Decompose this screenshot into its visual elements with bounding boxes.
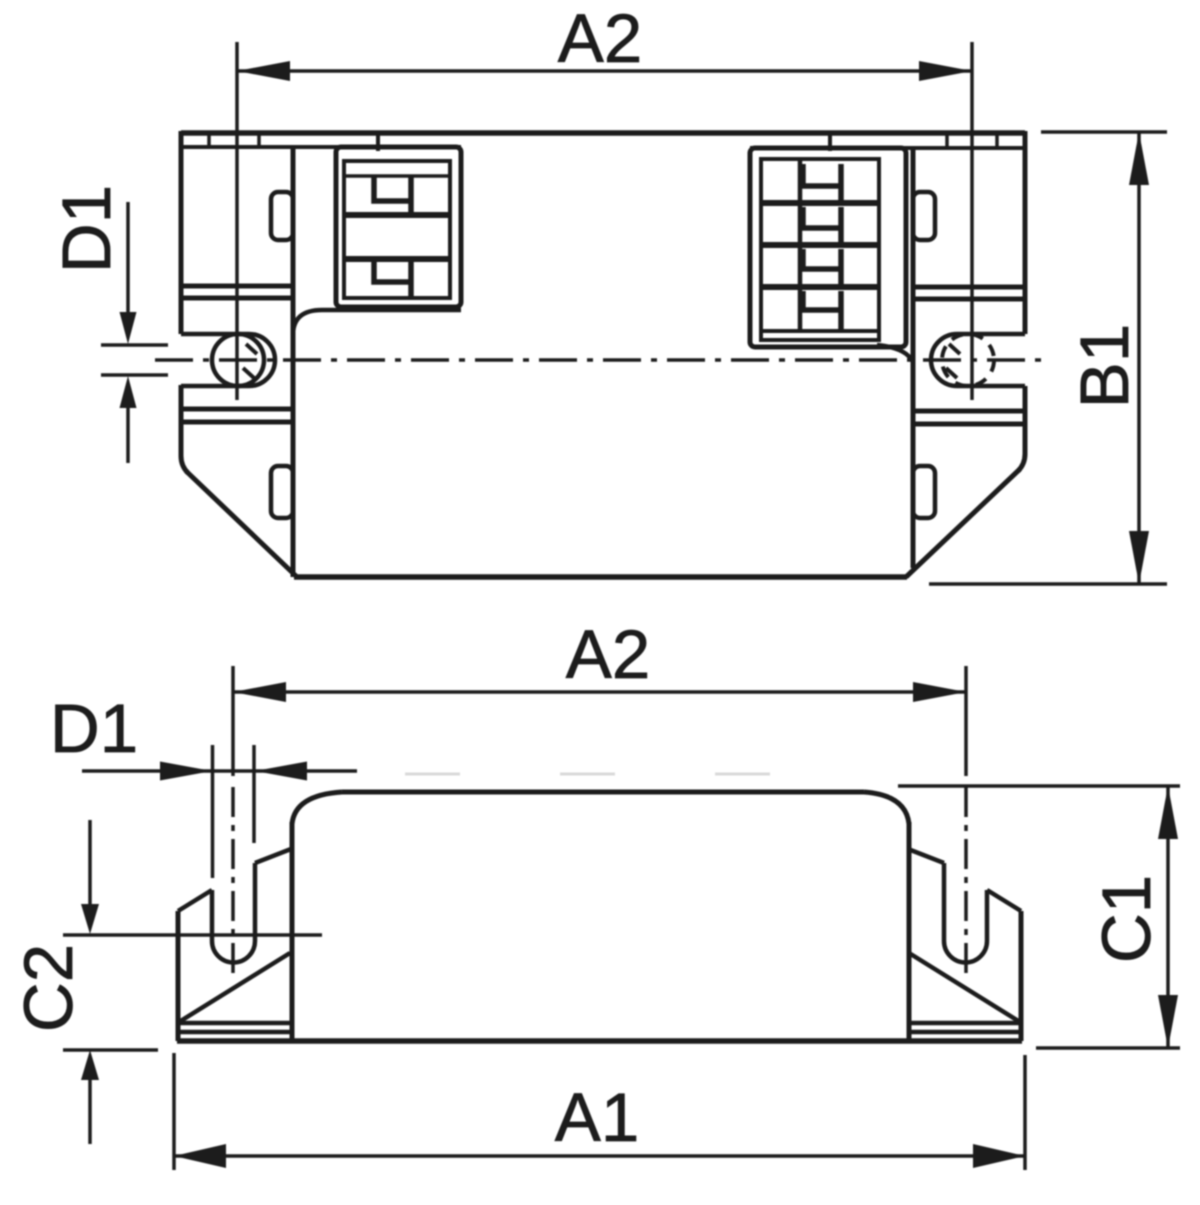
svg-text:D1: D1 — [48, 185, 125, 273]
svg-text:C2: C2 — [10, 944, 87, 1032]
svg-text:A2: A2 — [566, 616, 650, 693]
svg-text:B1: B1 — [1066, 324, 1143, 408]
svg-text:A2: A2 — [558, 0, 642, 77]
svg-text:C1: C1 — [1088, 875, 1165, 963]
svg-text:A1: A1 — [555, 1079, 639, 1156]
svg-text:D1: D1 — [50, 690, 138, 767]
